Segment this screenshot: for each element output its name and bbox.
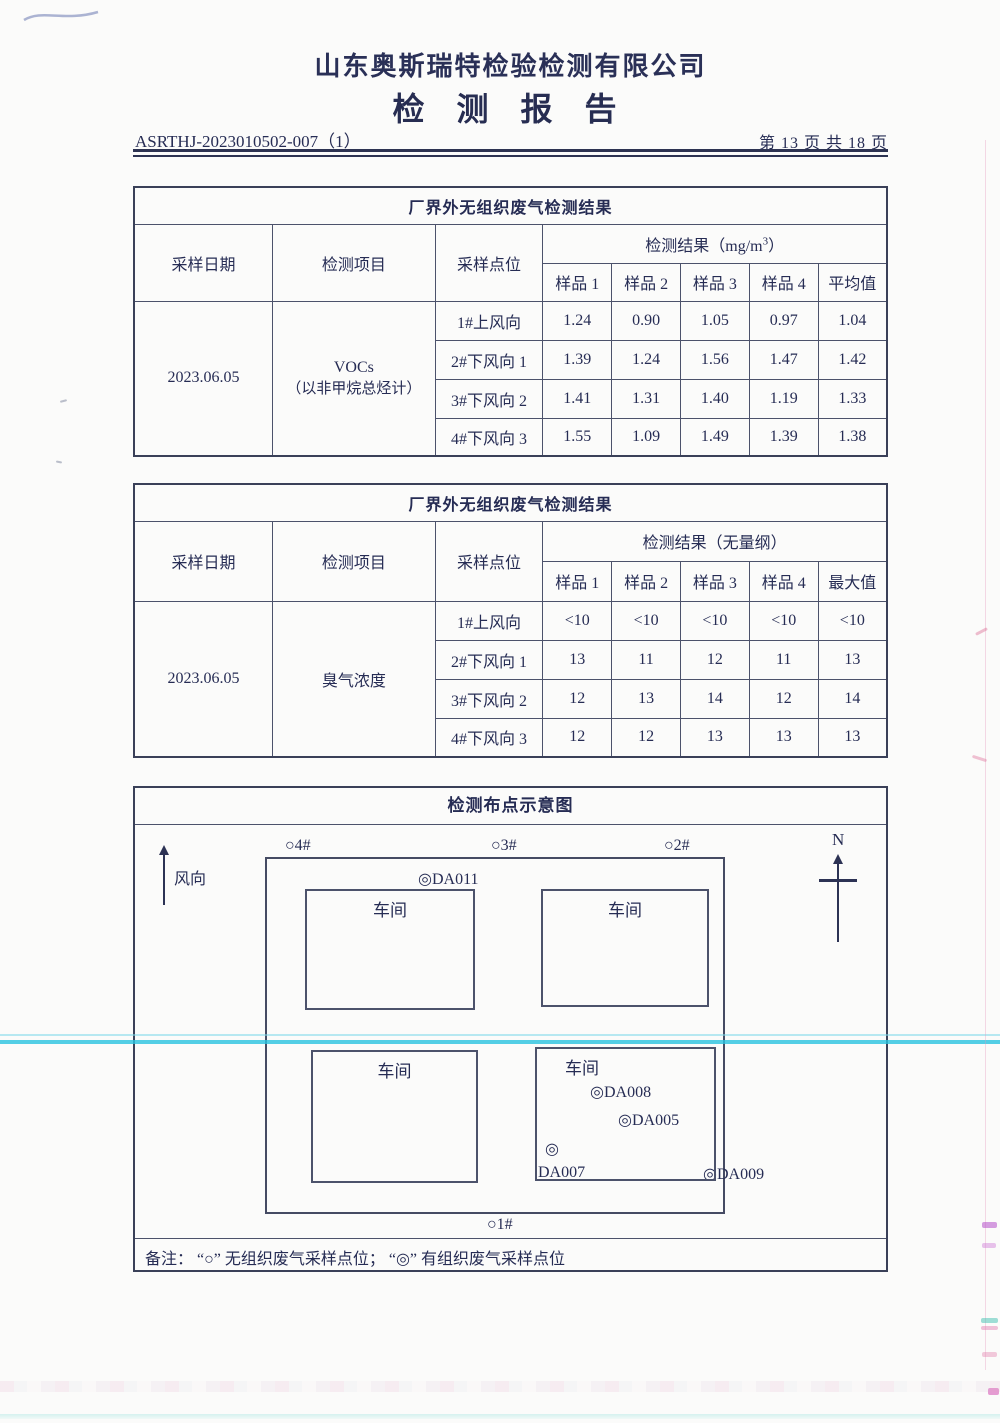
- wind-direction-arrow-icon: [159, 845, 169, 905]
- table2-r3v4: 12: [749, 679, 818, 718]
- table2-r3max: 14: [818, 679, 887, 718]
- table2-subcol-sample1: 样品 1: [543, 561, 612, 601]
- table1-r3v2: 1.31: [612, 379, 681, 418]
- table2-r3v2: 13: [612, 679, 681, 718]
- table1-col-point: 采样点位: [435, 224, 543, 301]
- scan-artifact-cyan-line-thick: [0, 1040, 1000, 1044]
- table2-r2v3: 12: [681, 640, 750, 679]
- table1-r2v4: 1.47: [749, 340, 818, 379]
- table1-r3v4: 1.19: [749, 379, 818, 418]
- table1-r4v3: 1.49: [681, 418, 750, 456]
- workshop-label: 车间: [543, 896, 707, 921]
- sampling-point-4: ○4#: [285, 837, 311, 855]
- scan-artifact-bottom-cyan: [0, 1414, 1000, 1419]
- stack-point-da011: ◎DA011: [418, 869, 478, 889]
- sampling-layout-diagram: 检测布点示意图 风向 N ○4# ○3# ○2# ○1# ◎DA011 ◎DA0…: [133, 786, 888, 1272]
- table2-title: 厂界外无组织废气检测结果: [134, 484, 887, 521]
- table1-col-date: 采样日期: [134, 224, 273, 301]
- table1-r4v1: 1.55: [543, 418, 612, 456]
- table1-r2v2: 1.24: [612, 340, 681, 379]
- table1-r3v3: 1.40: [681, 379, 750, 418]
- workshop-label: 车间: [313, 1057, 476, 1082]
- table2-subcol-sample4: 样品 4: [749, 561, 818, 601]
- table2-sampling-date: 2023.06.05: [134, 601, 273, 757]
- table2-test-item: 臭气浓度: [273, 601, 436, 757]
- sampling-point-2: ○2#: [664, 837, 690, 855]
- table1-r2v3: 1.56: [681, 340, 750, 379]
- table2-r1v2: <10: [612, 601, 681, 640]
- table2-r4v2: 12: [612, 718, 681, 757]
- table1-test-item: VOCs （以非甲烷总烃计）: [273, 301, 436, 456]
- table1-col-item: 检测项目: [273, 224, 436, 301]
- scan-artifact-blue-squiggle: [22, 5, 102, 27]
- table1-r1avg: 1.04: [818, 301, 887, 340]
- workshop-label: 车间: [537, 1054, 742, 1079]
- table2-r1v1: <10: [543, 601, 612, 640]
- diagram-title: 检测布点示意图: [135, 788, 886, 825]
- table1-r3avg: 1.33: [818, 379, 887, 418]
- table1-r1v3: 1.05: [681, 301, 750, 340]
- table1-sampling-date: 2023.06.05: [134, 301, 273, 456]
- scan-artifact-speck: [60, 399, 67, 403]
- table1-r4avg: 1.38: [818, 418, 887, 456]
- workshop-label: 车间: [307, 896, 473, 921]
- scan-artifact-dash: [981, 1318, 998, 1323]
- header-meta-row: ASRTHJ-2023010502-007（1） 第 13 页 共 18 页: [133, 127, 888, 149]
- scan-artifact-dash: [982, 1222, 997, 1228]
- table1-subcol-average: 平均值: [818, 263, 887, 301]
- legend-note: 备注： “○” 无组织废气采样点位； “◎” 有组织废气采样点位: [145, 1245, 886, 1269]
- table1-r1v2: 0.90: [612, 301, 681, 340]
- table2-point-1: 1#上风向: [435, 601, 543, 640]
- north-arrow-icon: [833, 854, 843, 942]
- table1-r4v4: 1.39: [749, 418, 818, 456]
- table2-r1v3: <10: [681, 601, 750, 640]
- scan-artifact-dash: [975, 627, 988, 636]
- table1-r2v1: 1.39: [543, 340, 612, 379]
- scan-artifact-dash: [982, 1243, 996, 1248]
- company-name: 山东奥斯瑞特检验检测有限公司: [133, 46, 888, 83]
- table1-subcol-sample2: 样品 2: [612, 263, 681, 301]
- table2-r3v3: 14: [681, 679, 750, 718]
- table2-r1max: <10: [818, 601, 887, 640]
- table2-r2v1: 13: [543, 640, 612, 679]
- table1-subcol-sample3: 样品 3: [681, 263, 750, 301]
- workshop-top-right: 车间: [541, 889, 709, 1007]
- table2-col-point: 采样点位: [435, 521, 543, 601]
- scan-artifact-speck: [56, 460, 62, 463]
- table2-point-3: 3#下风向 2: [435, 679, 543, 718]
- scan-artifact-cyan-line-thin: [0, 1034, 1000, 1036]
- table1-subcol-sample4: 样品 4: [749, 263, 818, 301]
- sampling-point-3: ○3#: [491, 837, 517, 855]
- voc-results-table: 厂界外无组织废气检测结果 采样日期 检测项目 采样点位 检测结果（mg/m3） …: [133, 186, 888, 457]
- table2-r2v4: 11: [749, 640, 818, 679]
- table2-col-date: 采样日期: [134, 521, 273, 601]
- table1-point-3: 3#下风向 2: [435, 379, 543, 418]
- table2-subcol-max: 最大值: [818, 561, 887, 601]
- table1-r3v1: 1.41: [543, 379, 612, 418]
- table1-r1v4: 0.97: [749, 301, 818, 340]
- table2-r4max: 13: [818, 718, 887, 757]
- table2-point-4: 4#下风向 3: [435, 718, 543, 757]
- table2-r4v4: 13: [749, 718, 818, 757]
- table1-r1v1: 1.24: [543, 301, 612, 340]
- north-label: N: [832, 830, 844, 850]
- table2-unit-header: 检测结果（无量纲）: [543, 521, 887, 561]
- table2-r4v1: 12: [543, 718, 612, 757]
- table2-col-item: 检测项目: [273, 521, 436, 601]
- table2-subcol-sample2: 样品 2: [612, 561, 681, 601]
- table-row: 2023.06.05 VOCs （以非甲烷总烃计） 1#上风向 1.24 0.9…: [134, 301, 887, 340]
- table-row: 2023.06.05 臭气浓度 1#上风向 <10 <10 <10 <10 <1…: [134, 601, 887, 640]
- wind-direction-label: 风向: [174, 865, 206, 889]
- diagram-note-row: 备注： “○” 无组织废气采样点位； “◎” 有组织废气采样点位: [135, 1238, 886, 1272]
- table1-subcol-sample1: 样品 1: [543, 263, 612, 301]
- scan-artifact-pink-vline: [985, 140, 986, 1370]
- workshop-bottom-right: 车间: [535, 1047, 716, 1181]
- sampling-point-1: ○1#: [487, 1216, 513, 1234]
- header-divider: [133, 149, 888, 157]
- scan-artifact-dash: [982, 1352, 997, 1357]
- table2-r2max: 13: [818, 640, 887, 679]
- table1-r4v2: 1.09: [612, 418, 681, 456]
- table2-point-2: 2#下风向 1: [435, 640, 543, 679]
- workshop-top-left: 车间: [305, 889, 475, 1010]
- table2-r4v3: 13: [681, 718, 750, 757]
- table1-point-4: 4#下风向 3: [435, 418, 543, 456]
- north-arrow-crossbar: [819, 879, 857, 882]
- scan-artifact-noise-band: [0, 1381, 1000, 1392]
- table2-r1v4: <10: [749, 601, 818, 640]
- report-title: 检 测 报 告: [133, 84, 888, 130]
- table1-title: 厂界外无组织废气检测结果: [134, 187, 887, 224]
- table1-r2avg: 1.42: [818, 340, 887, 379]
- table1-point-1: 1#上风向: [435, 301, 543, 340]
- odor-results-table: 厂界外无组织废气检测结果 采样日期 检测项目 采样点位 检测结果（无量纲） 样品…: [133, 483, 888, 758]
- workshop-bottom-left: 车间: [311, 1050, 478, 1183]
- table1-point-2: 2#下风向 1: [435, 340, 543, 379]
- table2-subcol-sample3: 样品 3: [681, 561, 750, 601]
- table2-r2v2: 11: [612, 640, 681, 679]
- table1-unit-header: 检测结果（mg/m3）: [543, 224, 887, 263]
- table2-r3v1: 12: [543, 679, 612, 718]
- scan-artifact-dash: [981, 1326, 998, 1330]
